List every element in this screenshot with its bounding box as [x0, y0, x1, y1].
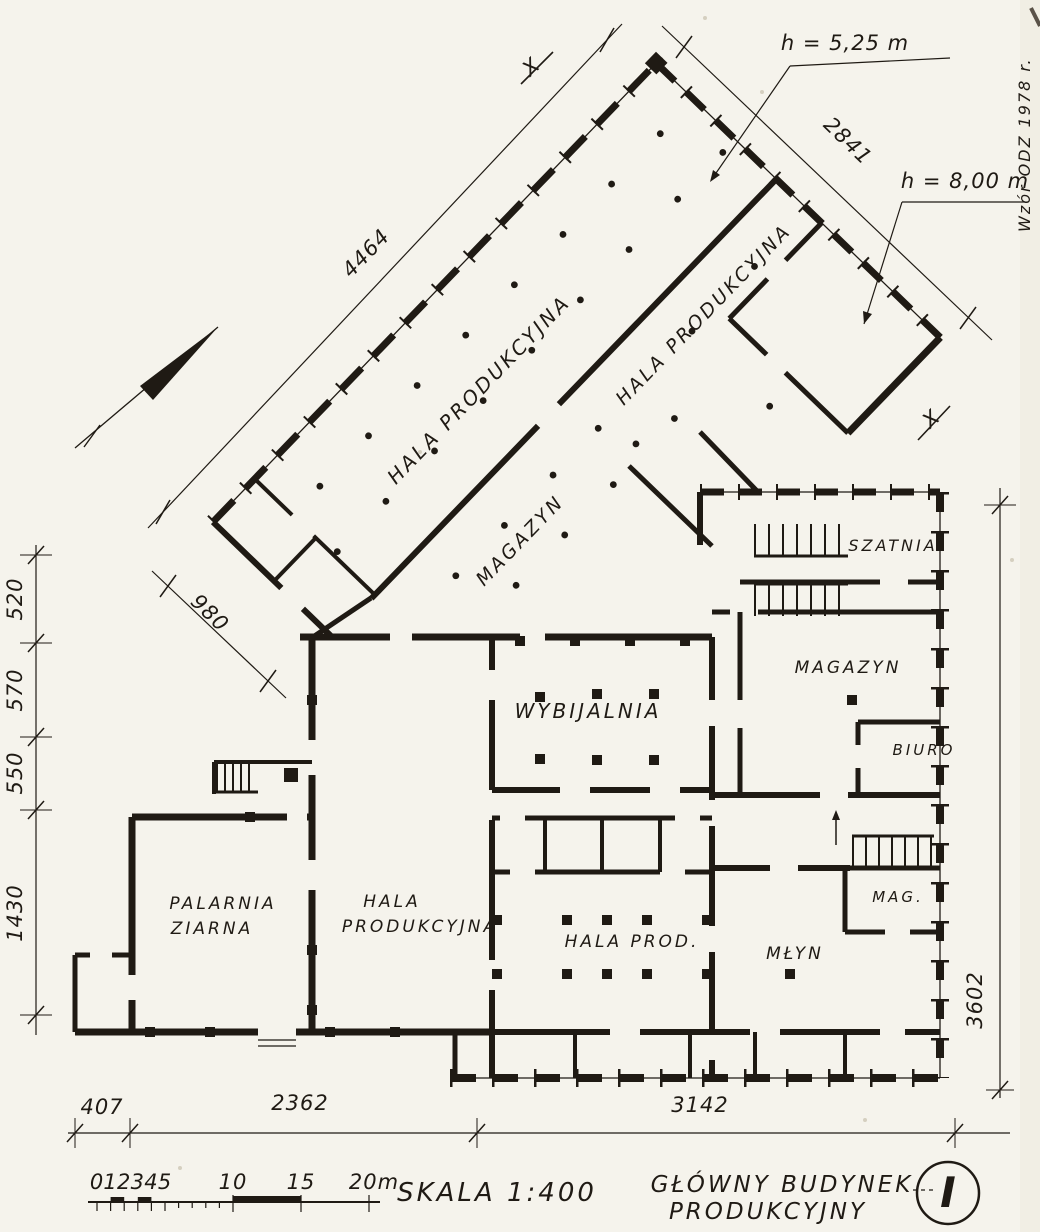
dim-label-2362: 2362 [271, 1091, 328, 1115]
room-label-szatnia: SZATNIA [848, 536, 937, 555]
dim-label-1430: 1430 [3, 884, 27, 941]
room-label-mlyn: MŁYN [766, 944, 824, 964]
scale-bar-tick-3: 3 [131, 1170, 145, 1194]
room-label-magazyn-right: MAGAZYN [795, 658, 902, 678]
room-label-palarnia-line1: PALARNIA [169, 894, 276, 914]
dim-label-570: 570 [3, 668, 27, 711]
room-label-biuro: BIURO [893, 741, 956, 759]
drawing-title-line2: PRODUKCYJNY [669, 1199, 867, 1225]
dim-label-407: 407 [80, 1095, 123, 1119]
dim-label-520: 520 [3, 577, 27, 620]
room-label-hala-bottom-line1: HALA [363, 892, 421, 912]
form-watermark: Wzór ODZ 1978 r. [1015, 57, 1034, 232]
dim-label-3142: 3142 [671, 1093, 728, 1117]
scale-bar-tick-10: 10 [219, 1170, 248, 1194]
scale-text: SKALA 1:400 [397, 1178, 597, 1208]
scale-bar-tick-5: 5 [158, 1170, 172, 1194]
room-label-hala-prod: HALA PROD. [565, 932, 700, 952]
height-label-525: h = 5,25 m [781, 31, 909, 55]
height-label-800: h = 8,00 m [901, 169, 1029, 193]
scale-bar-tick-0: 0 [90, 1170, 104, 1194]
drawing-title-line1: GŁÓWNY BUDYNEK [651, 1170, 914, 1198]
scale-bar-tick-2: 2 [117, 1170, 131, 1194]
floor-plan-drawing: HALA PRODUKCYJNA MAGAZYN HALA PRODUKCYJN… [0, 0, 1040, 1232]
sheet-number: I [940, 1168, 956, 1217]
paper-background [0, 0, 1040, 1232]
room-label-mag: MAG. [872, 888, 924, 906]
room-label-palarnia-line2: ZIARNA [170, 919, 253, 939]
scanned-floor-plan-page: HALA PRODUKCYJNA MAGAZYN HALA PRODUKCYJN… [0, 0, 1040, 1232]
scale-bar-tick-15: 15 [287, 1170, 316, 1194]
room-label-wybijalnia: WYBIJALNIA [515, 699, 662, 723]
scale-bar-tick-4: 4 [144, 1170, 158, 1194]
room-label-hala-bottom-line2: PRODUKCYJNA [342, 917, 498, 937]
dim-label-550: 550 [3, 751, 27, 794]
dim-label-3602: 3602 [963, 971, 987, 1028]
scale-bar-tick-1: 1 [103, 1170, 117, 1194]
scale-bar-tick-20m: 20m [349, 1170, 399, 1194]
